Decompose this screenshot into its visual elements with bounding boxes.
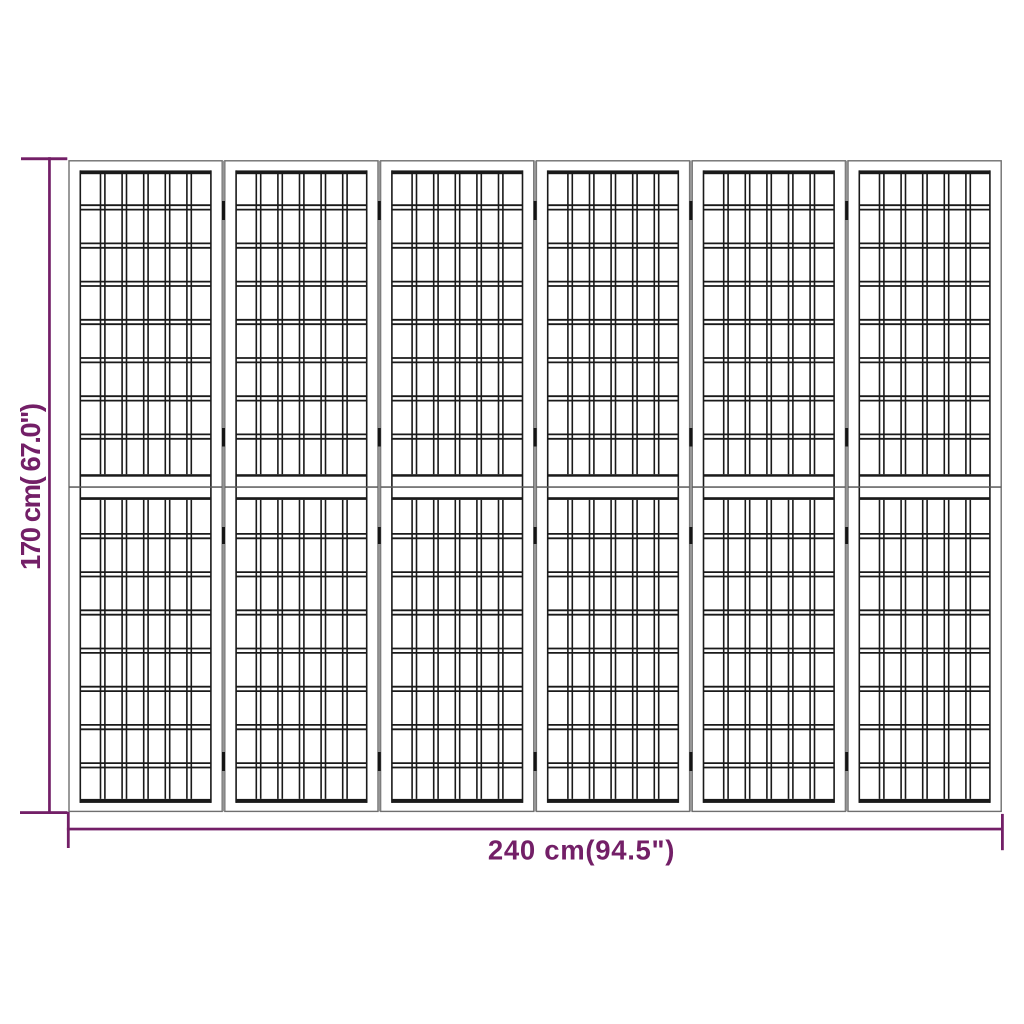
svg-text:170 cm( 67.0"): 170 cm( 67.0") (15, 404, 46, 570)
svg-text:240 cm(94.5"): 240 cm(94.5") (488, 834, 675, 865)
